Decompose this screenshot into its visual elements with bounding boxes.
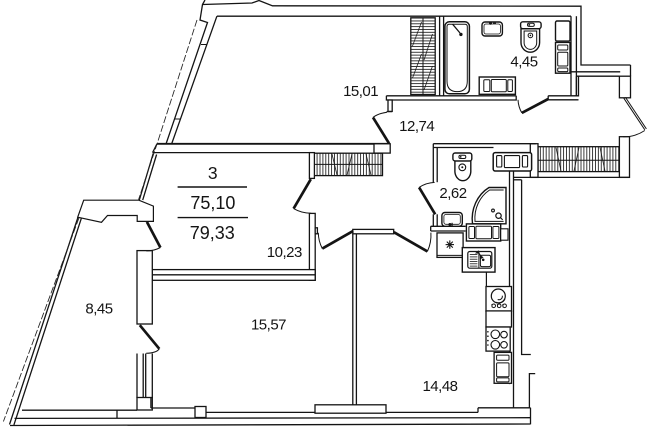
svg-text:4,45: 4,45 (510, 54, 537, 71)
svg-text:3: 3 (208, 163, 218, 183)
svg-text:14,48: 14,48 (422, 378, 457, 395)
svg-text:8,45: 8,45 (85, 301, 112, 318)
svg-text:15,57: 15,57 (251, 317, 286, 334)
svg-text:2,62: 2,62 (439, 185, 466, 202)
svg-text:10,23: 10,23 (267, 244, 302, 261)
svg-text:79,33: 79,33 (190, 223, 235, 243)
svg-text:75,10: 75,10 (190, 193, 235, 213)
svg-text:12,74: 12,74 (399, 118, 434, 135)
svg-text:15,01: 15,01 (343, 83, 378, 100)
